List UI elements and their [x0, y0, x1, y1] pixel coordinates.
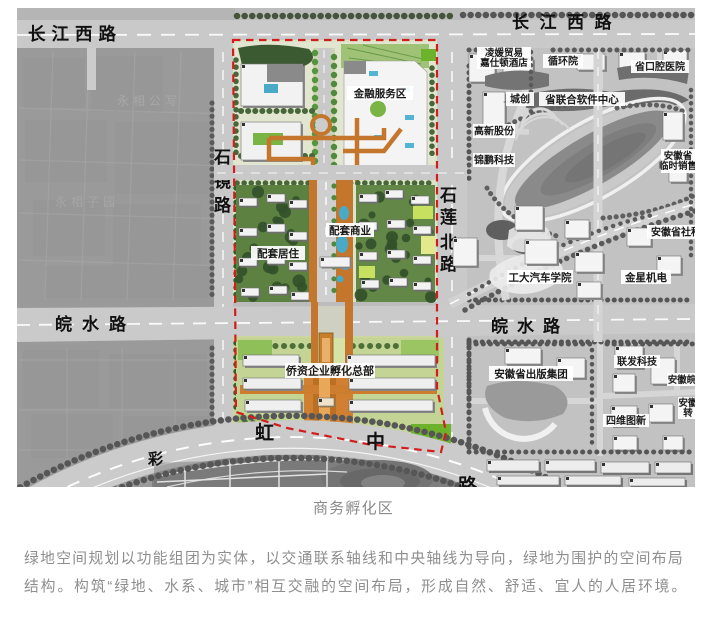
svg-text:虹: 虹 — [255, 421, 274, 444]
svg-text:联发科技: 联发科技 — [617, 355, 658, 368]
svg-text:工大汽车学院: 工大汽车学院 — [509, 271, 572, 284]
svg-text:路: 路 — [214, 195, 232, 215]
svg-text:石: 石 — [439, 186, 457, 205]
svg-text:永相公写: 永相公写 — [117, 94, 181, 108]
svg-text:配套居住: 配套居住 — [257, 247, 299, 260]
svg-text:安徽皖: 安徽皖 — [668, 374, 695, 386]
svg-text:金融服务区: 金融服务区 — [353, 87, 407, 100]
svg-text:石: 石 — [213, 148, 231, 167]
svg-text:配套商业: 配套商业 — [329, 224, 371, 237]
svg-text:安徽省出版集团: 安徽省出版集团 — [494, 367, 568, 380]
svg-text:嘉仕顿酒店: 嘉仕顿酒店 — [479, 57, 528, 69]
svg-text:彩: 彩 — [147, 450, 163, 468]
svg-text:转: 转 — [683, 407, 693, 419]
svg-text:四维图新: 四维图新 — [606, 414, 646, 427]
svg-text:省联合软件中心: 省联合软件中心 — [544, 93, 619, 106]
svg-text:莲: 莲 — [440, 208, 457, 227]
svg-text:锦鹏科技: 锦鹏科技 — [474, 154, 515, 167]
svg-text:皖水路: 皖水路 — [55, 314, 136, 334]
svg-text:中: 中 — [366, 430, 385, 453]
svg-text:安徽省社科: 安徽省社科 — [651, 226, 695, 239]
svg-text:侨资企业孵化总部: 侨资企业孵化总部 — [285, 363, 374, 377]
svg-text:城创: 城创 — [510, 93, 530, 106]
svg-text:永相子园: 永相子园 — [55, 195, 119, 209]
svg-text:长江西路: 长江西路 — [512, 12, 622, 32]
svg-text:长江西路: 长江西路 — [28, 24, 122, 44]
svg-text:省口腔医院: 省口腔医院 — [634, 60, 685, 73]
svg-text:循环院: 循环院 — [548, 55, 578, 68]
svg-text:皖水路: 皖水路 — [491, 316, 569, 336]
svg-text:临时销售: 临时销售 — [659, 160, 695, 172]
svg-text:路: 路 — [458, 474, 478, 487]
svg-text:高新股份: 高新股份 — [474, 125, 515, 138]
svg-text:金星机电: 金星机电 — [624, 271, 667, 284]
